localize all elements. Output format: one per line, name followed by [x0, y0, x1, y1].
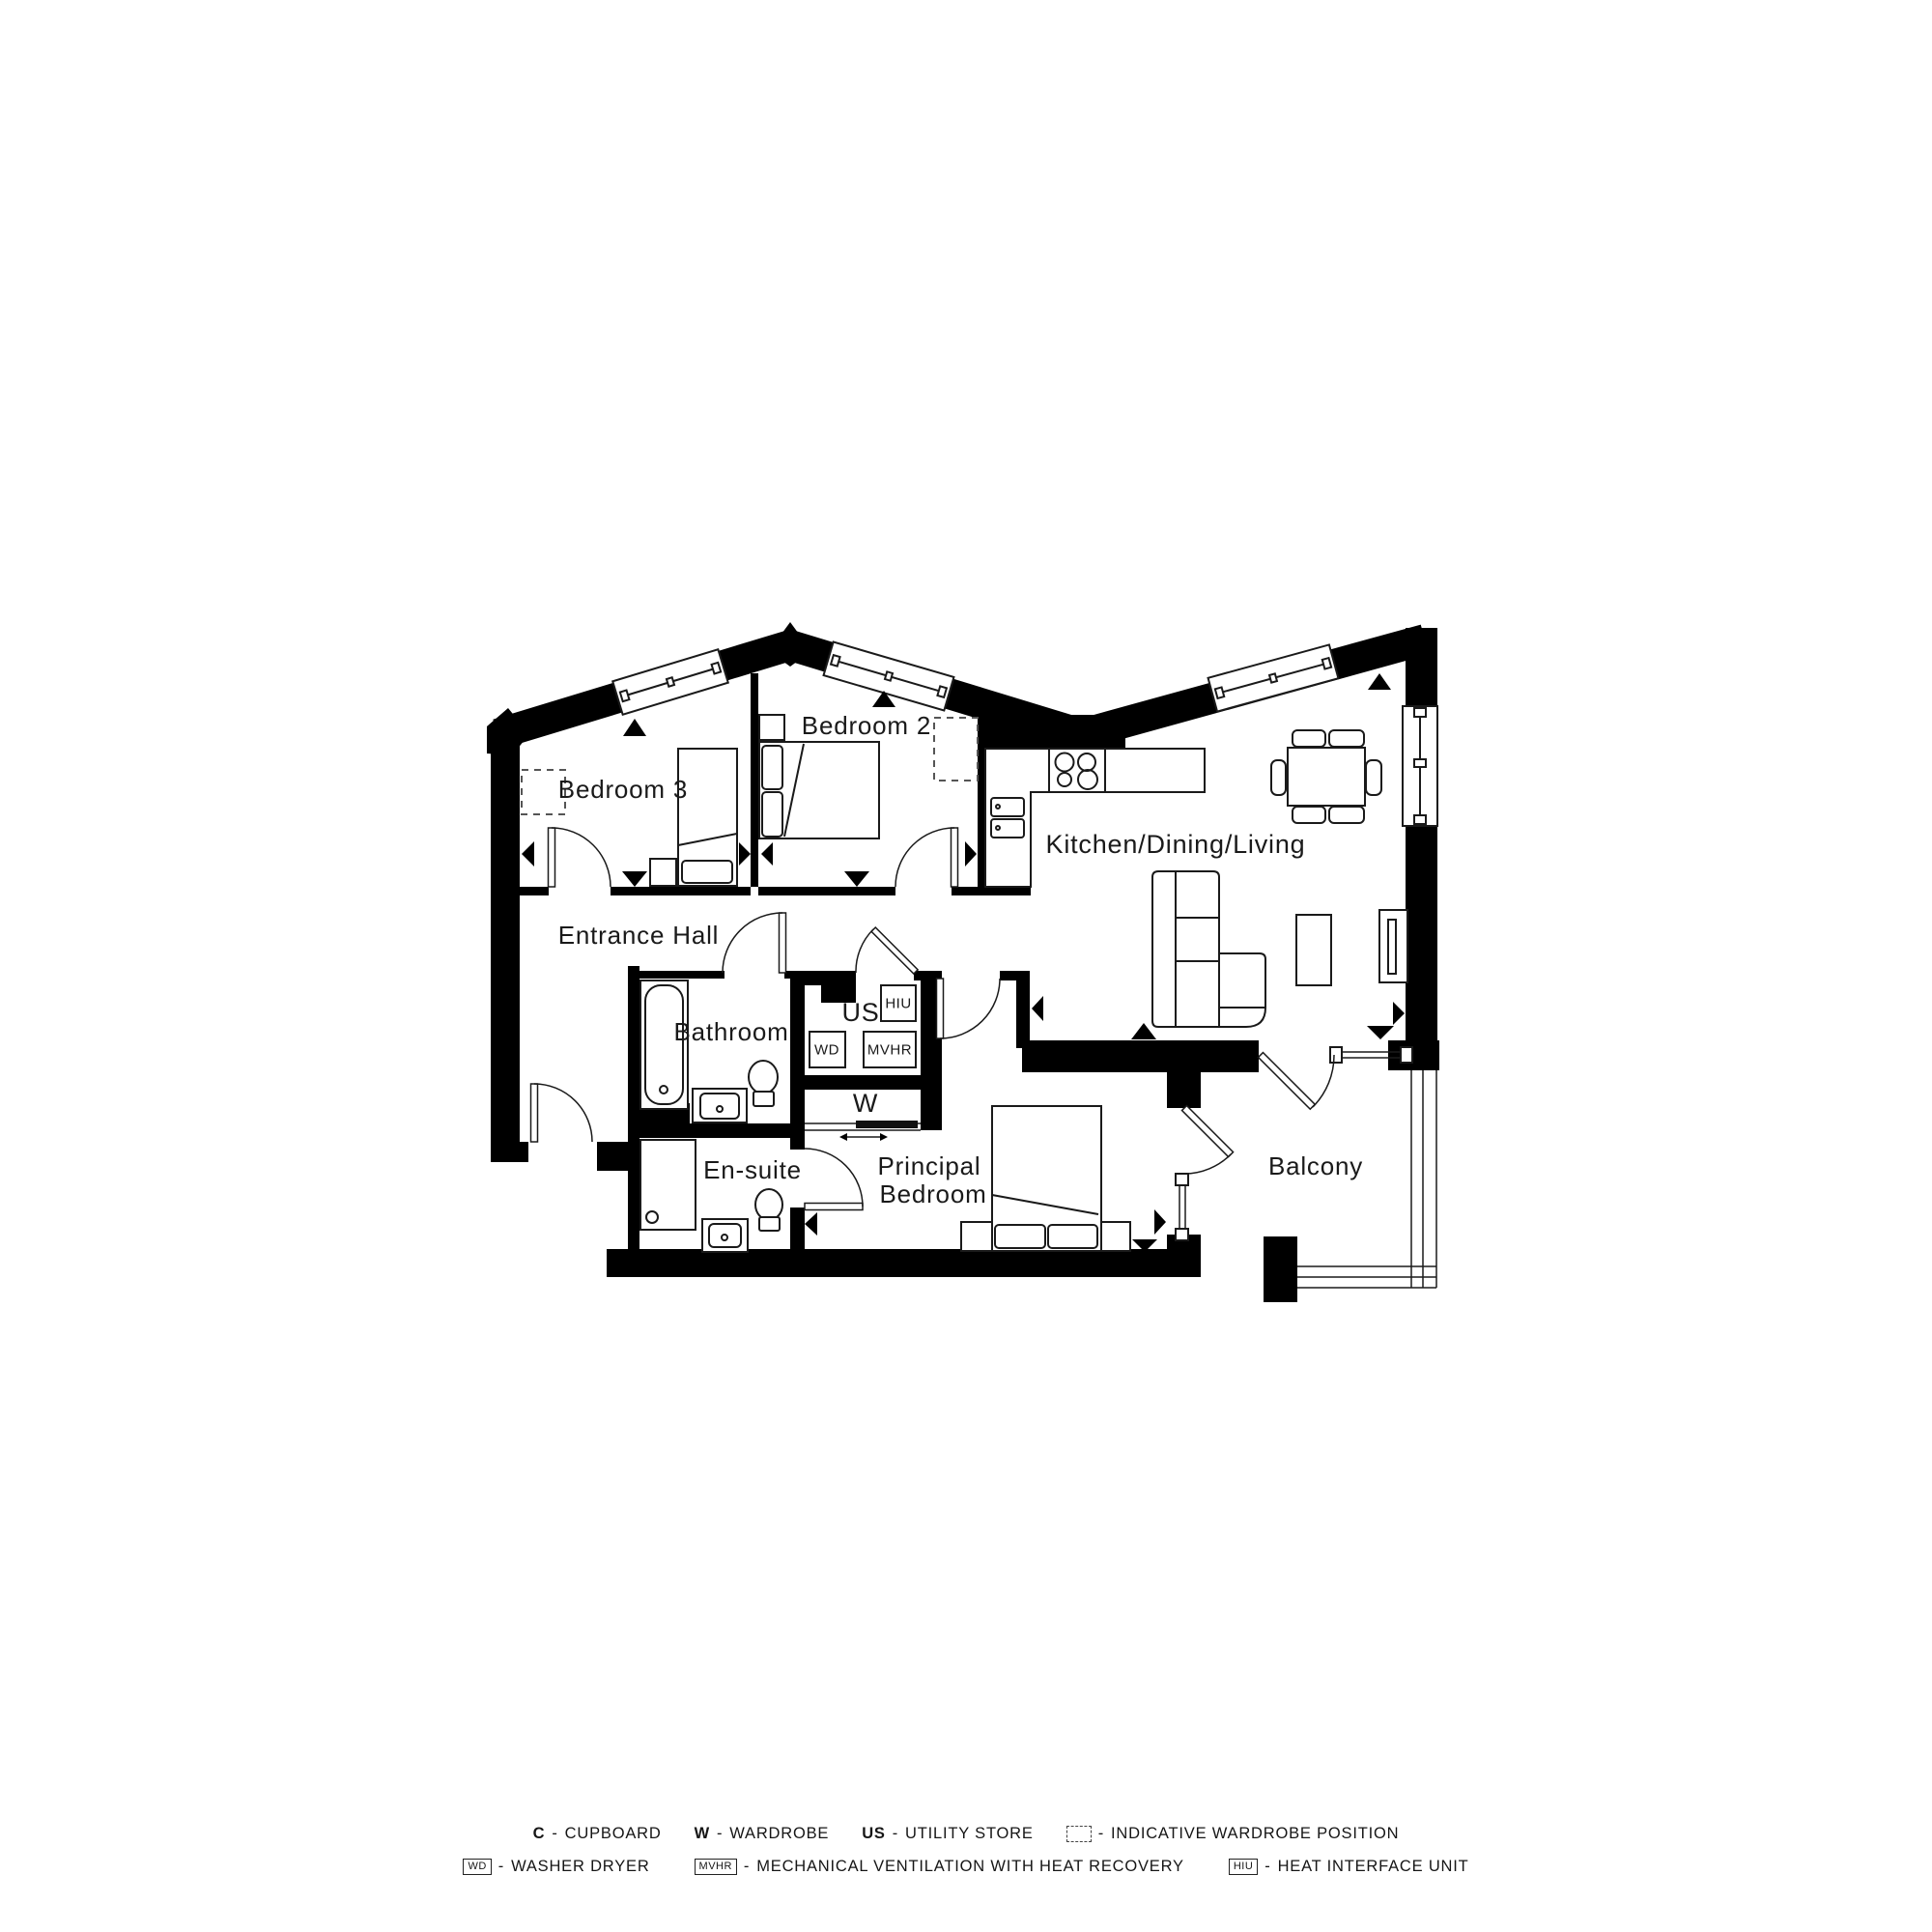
label-kitchen-dining-living: Kitchen/Dining/Living	[1046, 830, 1306, 859]
bathroom-toilet	[749, 1061, 778, 1106]
legend-item-hiu: HIU - HEAT INTERFACE UNIT	[1229, 1858, 1469, 1876]
label-wardrobe: W	[853, 1089, 878, 1118]
legend-item-mvhr: MVHR - MECHANICAL VENTILATION WITH HEAT …	[695, 1858, 1184, 1876]
legend-row-2: WD - WASHER DRYER MVHR - MECHANICAL VENT…	[463, 1858, 1468, 1876]
bathroom-north-wall	[629, 971, 724, 979]
coffee-table	[1296, 915, 1331, 985]
legend-separator: -	[1264, 1858, 1270, 1876]
ensuite-toilet	[755, 1189, 782, 1231]
legend-item-utility-store: US - UTILITY STORE	[862, 1825, 1033, 1843]
bedroom3-side-table	[650, 859, 676, 886]
label-bedroom2: Bedroom 2	[802, 711, 931, 740]
label-balcony: Balcony	[1268, 1151, 1363, 1180]
entrance-door	[531, 1084, 593, 1142]
marker-down-bedroom2-icon	[844, 871, 869, 887]
legend-code-wardrobe: W	[695, 1825, 710, 1843]
living-balcony-fixed-panel	[1330, 1047, 1412, 1063]
living-east-window	[1403, 706, 1437, 826]
hall-top-wall-mid	[611, 887, 751, 895]
label-bathroom: Bathroom	[673, 1017, 788, 1046]
legend-label-wardrobe-position: INDICATIVE WARDROBE POSITION	[1111, 1825, 1399, 1843]
marker-left-principal-door-icon	[1032, 996, 1043, 1021]
kitchen-counter	[985, 749, 1205, 887]
label-utility-store: US	[841, 998, 879, 1027]
bedroom3-bed	[678, 749, 737, 886]
hall-southwest-wall	[491, 1142, 528, 1162]
principal-side-table-right	[1101, 1222, 1130, 1251]
shower	[640, 1140, 696, 1230]
principal-side-table-left	[961, 1222, 992, 1251]
hiu-label: HIU	[885, 996, 911, 1012]
label-principal-line2: Bedroom	[879, 1179, 986, 1208]
bedroom2-south-wall	[758, 887, 895, 895]
entrance-corner	[597, 1142, 630, 1171]
kitchen-sloped-window	[1208, 644, 1339, 711]
wd-label: WD	[814, 1042, 839, 1059]
east-wall	[1406, 628, 1437, 1070]
utility-store-door	[856, 927, 918, 974]
marker-right-bedroom2-door-icon	[965, 841, 977, 867]
legend-item-wardrobe-position: - INDICATIVE WARDROBE POSITION	[1066, 1825, 1400, 1843]
marker-right-bedroom3-door-icon	[739, 842, 751, 866]
marker-right-balcony-door-icon	[1393, 1002, 1405, 1025]
dining-table	[1271, 730, 1381, 823]
bedroom2-door	[895, 828, 958, 887]
principal-balcony-fixed-panel	[1176, 1174, 1188, 1240]
legend-row-1: C - CUPBOARD W - WARDROBE US - UTILITY S…	[533, 1825, 1400, 1843]
valley-wall	[979, 715, 1125, 748]
principal-bedroom-door	[937, 979, 1001, 1038]
dashed-wardrobe-box-icon	[1066, 1826, 1092, 1842]
washer-dryer-unit: WD	[810, 1032, 845, 1067]
legend-separator: -	[893, 1825, 898, 1843]
legend-label-mvhr: MECHANICAL VENTILATION WITH HEAT RECOVER…	[756, 1858, 1184, 1876]
legend-item-cupboard: C - CUPBOARD	[533, 1825, 662, 1843]
legend-label-hiu: HEAT INTERFACE UNIT	[1278, 1858, 1469, 1876]
label-bedroom3: Bedroom 3	[558, 775, 688, 804]
legend-label-wardrobe: WARDROBE	[729, 1825, 829, 1843]
principal-door-stub	[1016, 976, 1030, 1048]
legend-code-cupboard: C	[533, 1825, 546, 1843]
legend-label-cupboard: CUPBOARD	[565, 1825, 662, 1843]
mvhr-unit: MVHR	[864, 1032, 916, 1067]
legend-separator: -	[498, 1858, 504, 1876]
legend-separator: -	[552, 1825, 557, 1843]
balcony-pier	[1264, 1236, 1297, 1302]
kitchen-south-wall	[952, 887, 1031, 895]
us-wardrobe-divider	[805, 1075, 921, 1090]
legend-separator: -	[717, 1825, 723, 1843]
legend-code-utility-store: US	[862, 1825, 886, 1843]
mvhr-label: MVHR	[867, 1042, 912, 1059]
legend-separator: -	[744, 1858, 750, 1876]
marker-down-balcony-door-icon	[1367, 1026, 1394, 1039]
ensuite-east-stub	[790, 1207, 805, 1256]
legend: C - CUPBOARD W - WARDROBE US - UTILITY S…	[0, 1825, 1932, 1876]
marker-left-bedroom2-door-icon	[761, 842, 773, 866]
bedroom3-window	[612, 649, 728, 714]
sofa	[1152, 871, 1265, 1027]
marker-down-bedroom3-icon	[622, 871, 647, 887]
legend-separator: -	[1098, 1825, 1104, 1843]
bedroom3-door	[549, 828, 611, 887]
marker-right-principal-balcony-icon	[1154, 1209, 1166, 1235]
marker-left-ensuite-door-icon	[805, 1212, 817, 1236]
bedroom2-bed	[759, 742, 879, 838]
bathroom-door	[723, 913, 786, 973]
label-ensuite: En-suite	[703, 1155, 802, 1184]
label-principal-line1: Principal	[878, 1151, 981, 1180]
bathroom-sink	[693, 1089, 747, 1122]
bathroom-us-wall	[790, 971, 805, 1150]
principal-balcony-door	[1182, 1106, 1234, 1174]
balcony-corner-wall	[1388, 1040, 1439, 1070]
us-north-wall	[805, 971, 856, 985]
marker-left-westwall-icon	[522, 841, 534, 867]
marker-up-living-icon	[1131, 1023, 1156, 1039]
bedroom2-side-table	[759, 715, 784, 740]
legend-item-wardrobe: W - WARDROBE	[695, 1825, 830, 1843]
legend-code-washer-dryer: WD	[463, 1859, 491, 1875]
bathroom-south-wall	[690, 1123, 802, 1138]
west-wall	[491, 724, 520, 1162]
living-principal-wall	[1022, 1040, 1259, 1072]
marker-up-bedroom3-icon	[623, 719, 646, 736]
hall-top-wall-left	[520, 887, 549, 895]
legend-code-hiu: HIU	[1229, 1859, 1258, 1875]
marker-up-kitchen-icon	[1368, 673, 1391, 690]
label-entrance-hall: Entrance Hall	[558, 921, 719, 950]
south-wall	[607, 1249, 1201, 1277]
bedroom-divider-wall	[751, 673, 758, 887]
living-balcony-door	[1259, 1053, 1334, 1110]
hiu-unit: HIU	[881, 985, 916, 1021]
bedroom2-kitchen-wall	[978, 715, 984, 887]
legend-item-washer-dryer: WD - WASHER DRYER	[463, 1858, 649, 1876]
ensuite-door	[805, 1149, 863, 1210]
floor-plan-canvas: HIU WD MVHR Bedroom 3 Bedroom 2 Kitch	[0, 0, 1932, 1932]
legend-label-utility-store: UTILITY STORE	[905, 1825, 1034, 1843]
legend-label-washer-dryer: WASHER DRYER	[511, 1858, 649, 1876]
bedroom2-wardrobe-position	[934, 718, 978, 781]
wardrobe-sliding-door	[805, 1121, 921, 1141]
ensuite-sink	[702, 1219, 748, 1252]
principal-bed	[992, 1106, 1101, 1251]
legend-code-mvhr: MVHR	[695, 1859, 737, 1875]
tv-unit	[1379, 910, 1407, 982]
